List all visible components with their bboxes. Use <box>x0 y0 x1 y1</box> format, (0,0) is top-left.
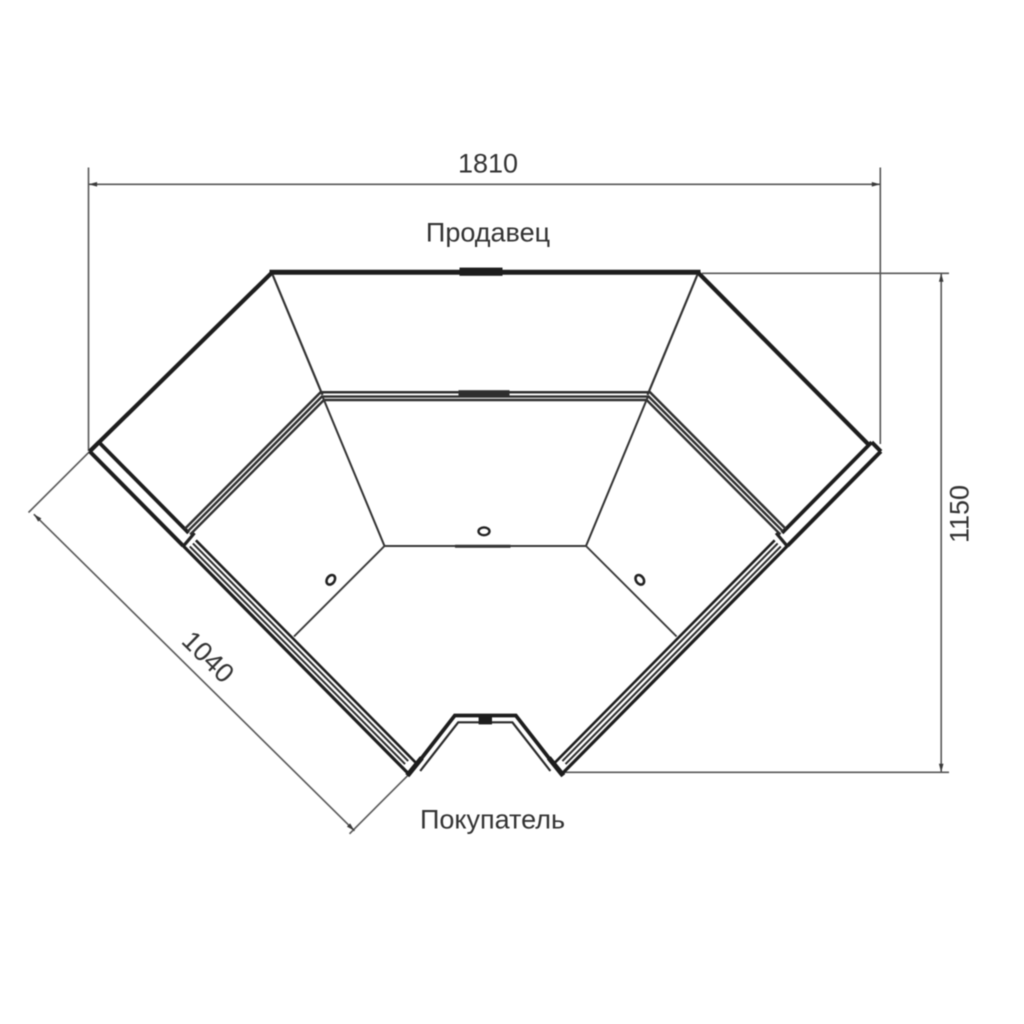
svg-text:1150: 1150 <box>945 485 975 543</box>
svg-text:Продавец: Продавец <box>426 218 550 248</box>
svg-text:1040: 1040 <box>176 625 240 689</box>
svg-text:Покупатель: Покупатель <box>420 805 565 835</box>
svg-text:1810: 1810 <box>458 149 518 179</box>
